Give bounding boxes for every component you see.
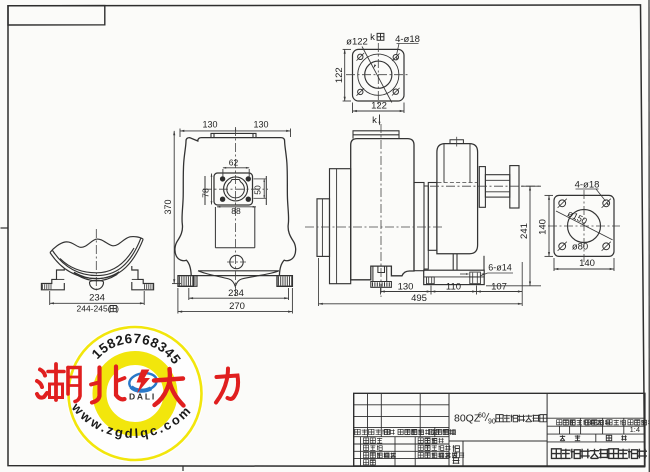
svg-text:62: 62	[229, 158, 239, 168]
svg-text:1:4: 1:4	[630, 425, 640, 434]
svg-text:ø122: ø122	[346, 37, 368, 48]
svg-text:244-245(: 244-245(	[76, 304, 110, 314]
svg-text:78: 78	[200, 188, 210, 198]
svg-text:495: 495	[411, 293, 427, 304]
svg-text:122: 122	[334, 67, 345, 83]
svg-text:140: 140	[579, 258, 595, 269]
svg-text:90: 90	[488, 419, 496, 426]
svg-text:k: k	[372, 115, 377, 126]
svg-text:370: 370	[163, 199, 173, 214]
svg-text:50: 50	[253, 185, 263, 195]
svg-text:107: 107	[491, 281, 507, 292]
svg-text:241: 241	[519, 223, 530, 239]
svg-text:234: 234	[89, 293, 105, 304]
svg-text:130: 130	[202, 120, 217, 130]
svg-text:60: 60	[478, 413, 486, 420]
svg-text:122: 122	[371, 100, 387, 111]
svg-text:88: 88	[231, 206, 241, 216]
svg-text:k: k	[370, 32, 375, 43]
svg-text:234: 234	[228, 288, 244, 299]
svg-text:140: 140	[537, 219, 548, 235]
svg-text:110: 110	[446, 281, 461, 292]
svg-text:130: 130	[398, 281, 414, 292]
svg-text:130: 130	[253, 120, 268, 130]
svg-text:270: 270	[229, 301, 245, 312]
svg-text:DALI: DALI	[129, 392, 156, 402]
svg-text:): )	[116, 304, 119, 314]
svg-text:6-ø14: 6-ø14	[488, 263, 512, 273]
svg-text:80QZ: 80QZ	[454, 413, 481, 425]
svg-text:ø80: ø80	[572, 242, 588, 253]
